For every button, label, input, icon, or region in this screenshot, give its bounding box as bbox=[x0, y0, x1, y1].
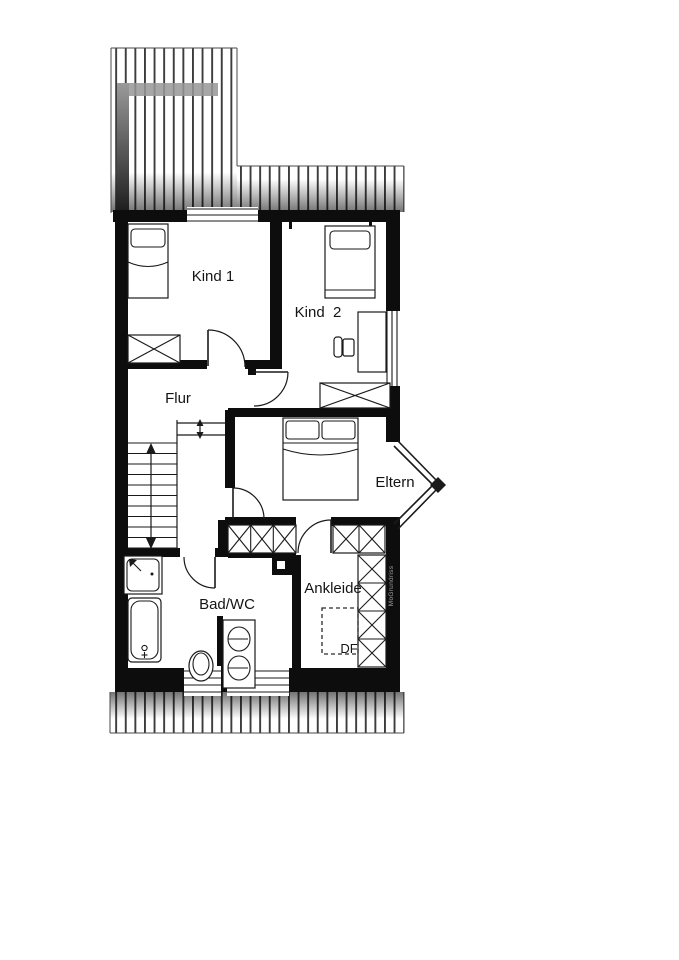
chimney bbox=[272, 555, 292, 575]
staircase bbox=[128, 420, 225, 549]
bed-kind1 bbox=[128, 224, 168, 298]
wardrobe-row-left bbox=[228, 525, 296, 553]
room-label-eltern: Eltern bbox=[375, 474, 414, 491]
floor-plan: Kind 1 Kind 2 Flur Eltern Bad/WC Ankleid… bbox=[0, 0, 679, 960]
door-kind2 bbox=[254, 372, 288, 406]
landing-arrow bbox=[197, 419, 204, 439]
roof-hatch-top-left bbox=[111, 48, 237, 213]
room-label-kind2: Kind 2 bbox=[295, 304, 342, 321]
roof-window-label: DF bbox=[340, 641, 357, 656]
chair-kind2 bbox=[334, 337, 354, 357]
desk-kind2 bbox=[358, 312, 386, 372]
door-kind1 bbox=[208, 330, 245, 367]
bed-eltern bbox=[283, 418, 358, 500]
roof-hatch-top-right bbox=[237, 166, 404, 212]
wardrobe-kind1 bbox=[128, 335, 180, 363]
wardrobe-row-right bbox=[333, 525, 385, 553]
shower bbox=[124, 556, 162, 594]
double-washbasin bbox=[223, 620, 255, 688]
room-label-ankleide: Ankleide bbox=[304, 580, 362, 597]
bathtub bbox=[128, 598, 161, 662]
floor-plan-page: Kind 1 Kind 2 Flur Eltern Bad/WC Ankleid… bbox=[0, 0, 679, 960]
door-eltern bbox=[233, 488, 264, 519]
roof-hatch-bottom bbox=[110, 692, 404, 733]
room-label-bad-wc: Bad/WC bbox=[199, 596, 255, 613]
room-label-flur: Flur bbox=[165, 390, 191, 407]
window-kind1-top bbox=[187, 207, 258, 224]
toilet bbox=[189, 651, 213, 681]
bed-kind2 bbox=[325, 226, 375, 298]
wardrobe-column bbox=[358, 555, 386, 667]
watermark-text: MoGrundriss bbox=[388, 565, 395, 606]
door-bad bbox=[184, 557, 215, 588]
room-label-kind1: Kind 1 bbox=[192, 268, 235, 285]
wardrobe-kind2 bbox=[320, 383, 390, 408]
door-ankleide bbox=[298, 520, 331, 553]
